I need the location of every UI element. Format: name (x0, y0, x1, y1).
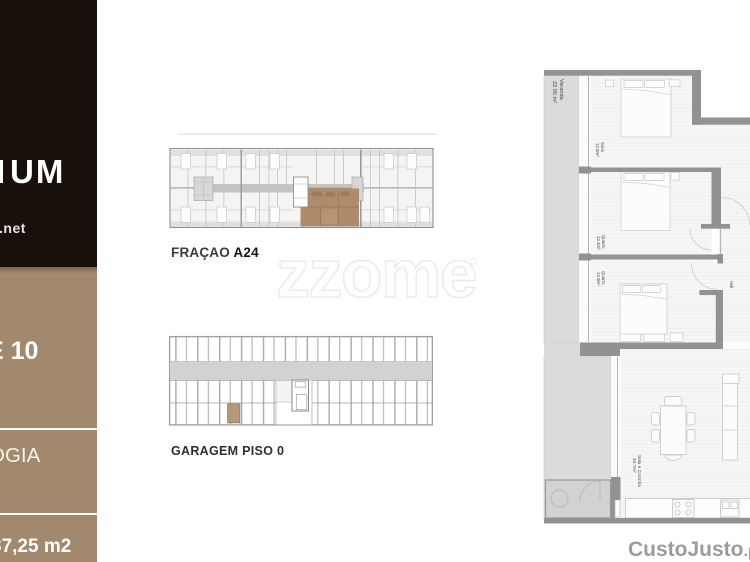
svg-text:34.7m²: 34.7m² (632, 458, 637, 473)
svg-text:12.4m²: 12.4m² (596, 236, 601, 250)
svg-text:Varanda: Varanda (558, 79, 564, 101)
svg-text:22.95 m²: 22.95 m² (551, 81, 557, 103)
svg-text:Hall: Hall (729, 281, 734, 288)
svg-text:12.5m²: 12.5m² (595, 143, 600, 157)
svg-text:12.8m²: 12.8m² (596, 272, 601, 286)
